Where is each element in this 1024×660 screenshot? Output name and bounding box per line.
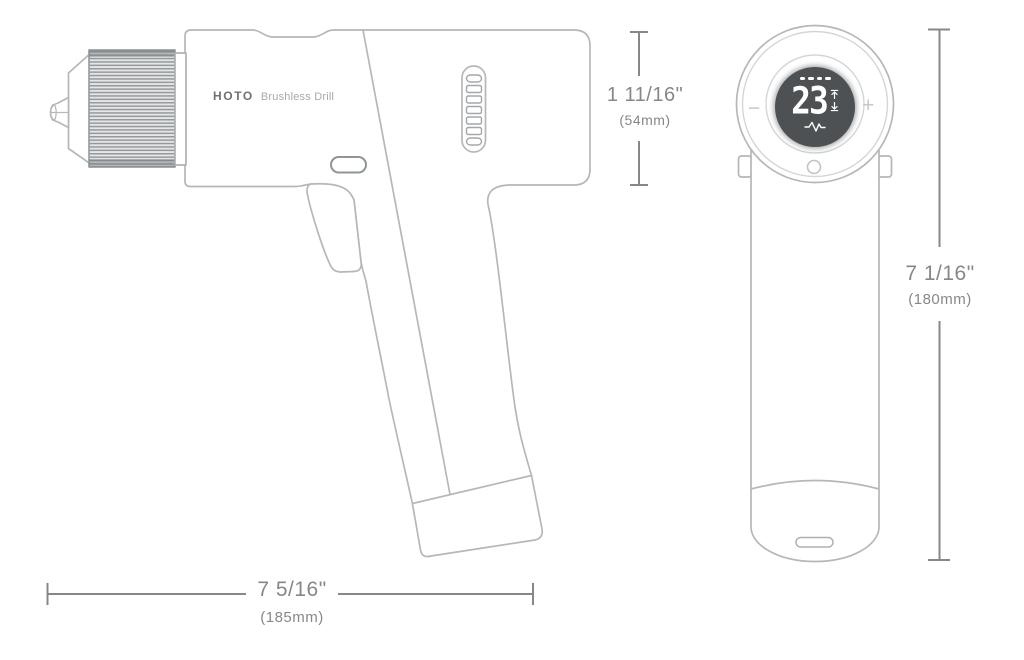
plus-symbol: + (862, 95, 874, 116)
chuck-knurl (89, 50, 175, 167)
drill-side-view (51, 30, 591, 557)
display-value: 23 (791, 82, 827, 119)
inches-value: 1 11/16" (565, 84, 725, 107)
trigger (307, 184, 361, 272)
torque-icons (830, 89, 839, 112)
belt-clip-tab-right (879, 156, 892, 177)
minus-symbol: − (748, 98, 760, 119)
torque-up-icon (830, 89, 839, 99)
dim-total-height-label: 7 1/16" (180mm) (860, 262, 1020, 308)
dim-head-height-label: 1 11/16" (54mm) (565, 84, 725, 128)
metric-value: (185mm) (190, 609, 394, 626)
dim-length-label: 7 5/16" (185mm) (190, 578, 394, 626)
chuck-knurl-shade-bottom (89, 159, 175, 167)
base-slot (796, 538, 833, 548)
belt-clip-tab-left (739, 156, 752, 177)
chuck (51, 50, 187, 167)
brand-label: HOTO Brushless Drill (213, 89, 334, 103)
drill-body-outline (185, 30, 590, 557)
inches-value: 7 5/16" (190, 578, 394, 602)
inches-value: 7 1/16" (860, 262, 1020, 286)
metric-value: (54mm) (565, 112, 725, 128)
chuck-collar (175, 53, 186, 165)
hoto-drill-dimension-diagram: HOTO Brushless Drill 1 11/16" (54mm) 7 5… (0, 0, 1024, 660)
mode-button (808, 161, 821, 174)
brand-text: HOTO (213, 89, 254, 103)
metric-value: (180mm) (860, 291, 1020, 308)
product-name-text: Brushless Drill (261, 91, 334, 103)
back-body-outline (751, 143, 879, 562)
torque-down-icon (830, 102, 839, 112)
chuck-knurl-shade-top (89, 50, 175, 57)
led-light-pill (331, 157, 366, 173)
led-display: 23 (775, 67, 855, 147)
